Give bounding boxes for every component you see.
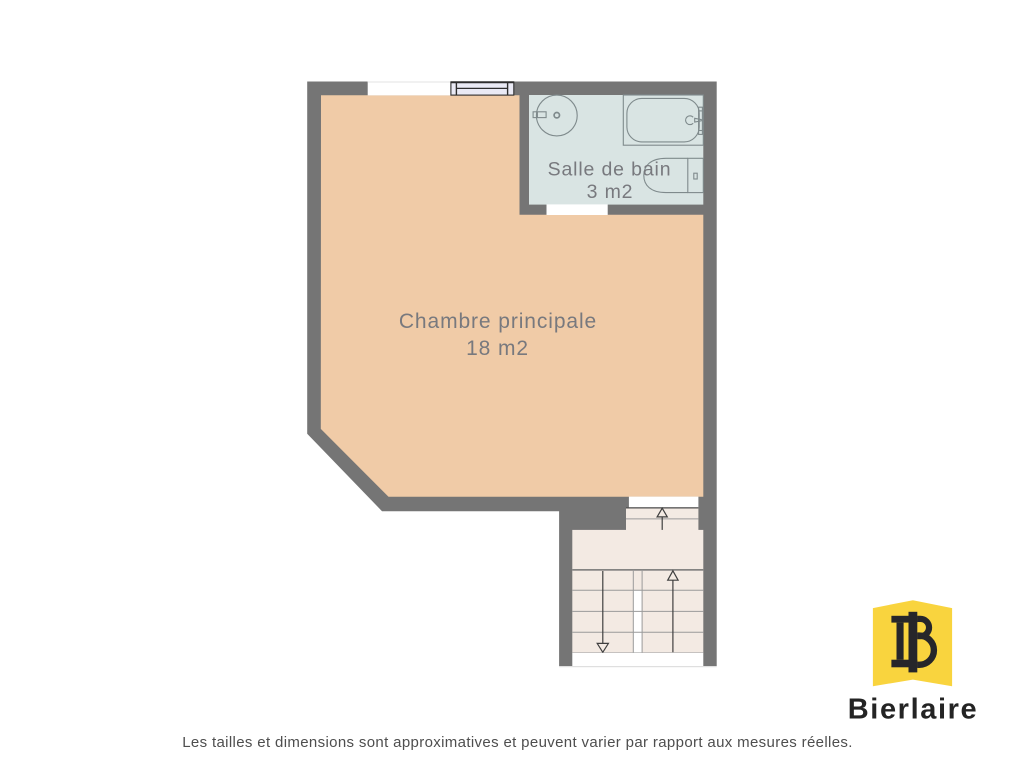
- svg-text:Salle de bain: Salle de bain: [548, 159, 672, 181]
- svg-text:18 m2: 18 m2: [466, 337, 529, 360]
- svg-text:Bierlaire: Bierlaire: [848, 694, 978, 726]
- svg-text:3 m2: 3 m2: [587, 181, 634, 203]
- svg-text:Les tailles et dimensions sont: Les tailles et dimensions sont approxima…: [182, 734, 853, 751]
- svg-text:Chambre principale: Chambre principale: [399, 310, 597, 333]
